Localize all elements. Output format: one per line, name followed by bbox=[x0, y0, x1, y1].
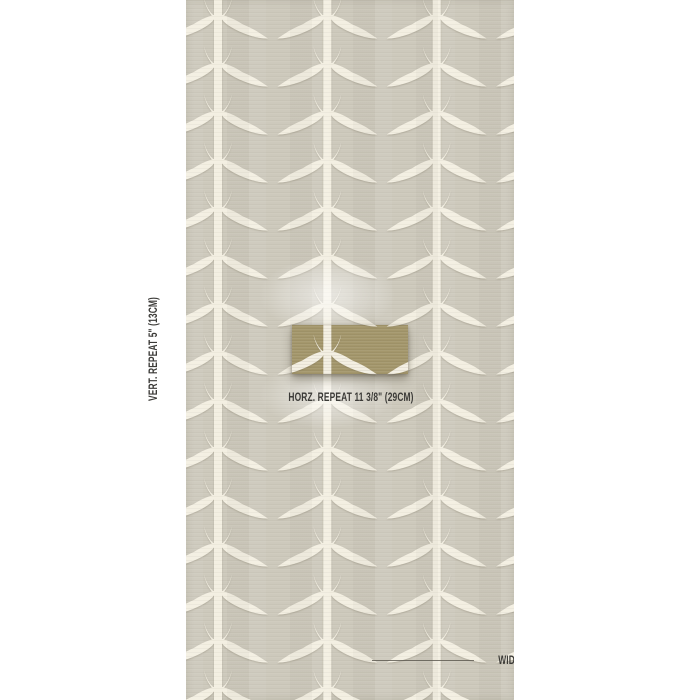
width-label: WIDTH 34" (86CM) bbox=[498, 653, 514, 667]
acanthus-stripe-pattern-svg-highlight bbox=[292, 325, 408, 374]
product-dimension-image: VERT. REPEAT 5" (13CM) bbox=[0, 0, 700, 700]
pattern-motifs bbox=[292, 325, 408, 374]
width-annotation: WIDTH 34" (86CM) bbox=[372, 653, 514, 667]
vertical-repeat-label: VERT. REPEAT 5" (13CM) bbox=[146, 297, 160, 401]
width-rule-left bbox=[372, 660, 474, 661]
wallpaper-swatch: WIDTH 34" (86CM) bbox=[186, 0, 514, 700]
horizontal-repeat-label: HORZ. REPEAT 11 3/8" (29CM) bbox=[288, 390, 413, 404]
horizontal-repeat-highlight-box bbox=[292, 325, 408, 374]
